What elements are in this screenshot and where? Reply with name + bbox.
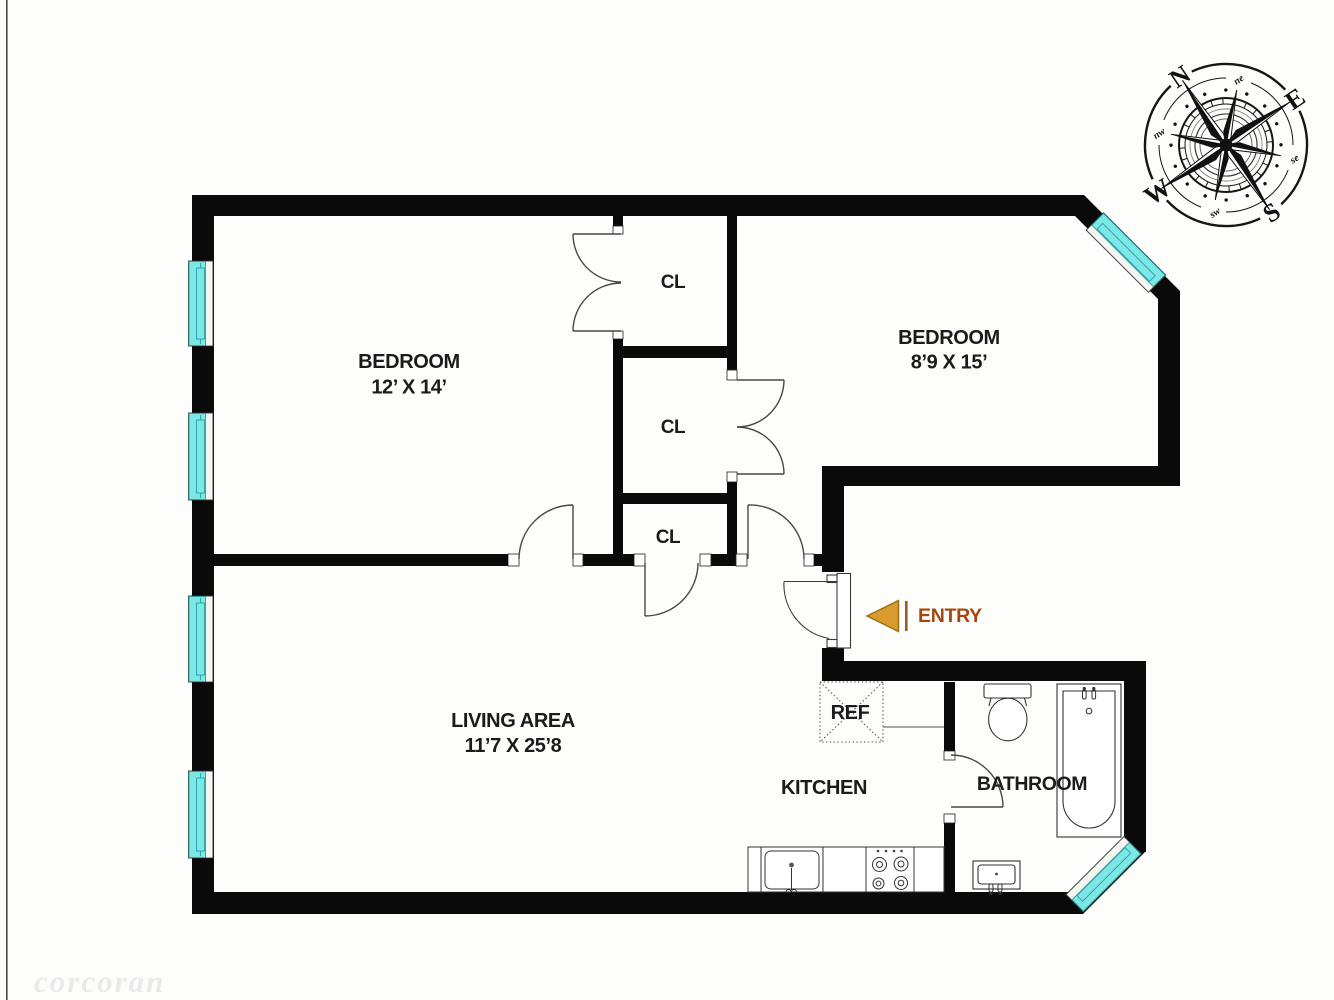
svg-text:KITCHEN: KITCHEN: [781, 777, 867, 799]
svg-text:8’9 X 15’: 8’9 X 15’: [911, 352, 987, 374]
svg-text:BEDROOM: BEDROOM: [898, 327, 1000, 349]
svg-text:CL: CL: [661, 417, 686, 438]
svg-text:LIVING AREA: LIVING AREA: [451, 710, 575, 732]
svg-text:CL: CL: [661, 272, 686, 293]
svg-text:11’7 X 25’8: 11’7 X 25’8: [465, 735, 562, 757]
svg-text:corcoran: corcoran: [34, 964, 165, 999]
svg-text:ENTRY: ENTRY: [918, 605, 982, 627]
svg-text:BEDROOM: BEDROOM: [358, 351, 460, 373]
svg-text:BATHROOM: BATHROOM: [977, 773, 1087, 795]
svg-text:REF: REF: [831, 702, 870, 724]
svg-text:12’ X 14’: 12’ X 14’: [371, 377, 446, 399]
svg-text:CL: CL: [656, 527, 681, 548]
